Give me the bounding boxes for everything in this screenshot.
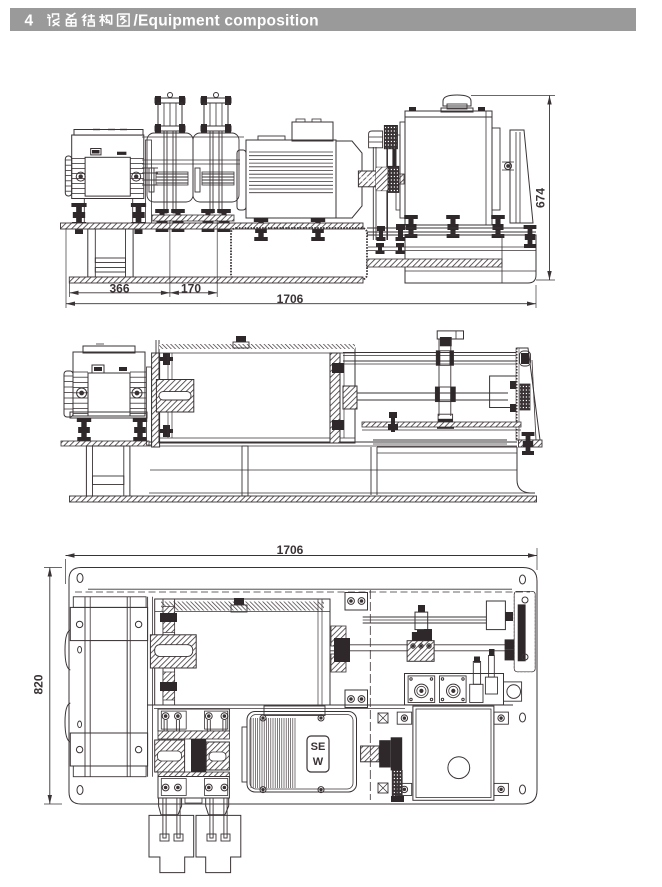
svg-text:820: 820 (31, 674, 45, 694)
svg-text:1706: 1706 (277, 543, 304, 557)
svg-text:674: 674 (534, 188, 548, 208)
svg-text:W: W (313, 756, 324, 768)
svg-text:/Equipment composition: /Equipment composition (134, 13, 319, 30)
svg-text:SE: SE (311, 741, 326, 753)
svg-text:4: 4 (25, 13, 34, 30)
svg-text:366: 366 (109, 281, 129, 295)
svg-text:170: 170 (181, 281, 201, 295)
svg-text:1706: 1706 (277, 292, 304, 306)
